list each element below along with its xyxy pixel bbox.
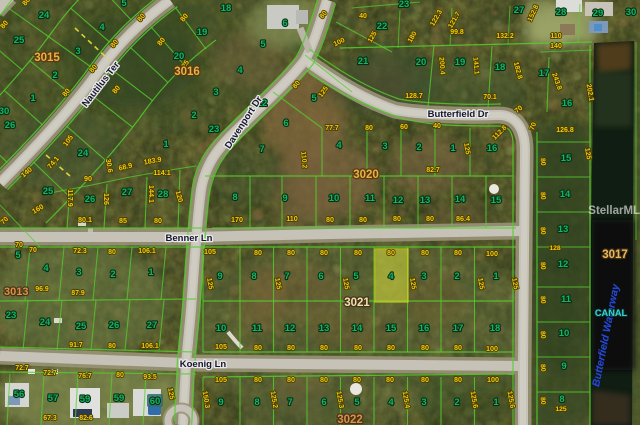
svg-text:80: 80 — [421, 343, 429, 352]
svg-text:25: 25 — [14, 35, 25, 46]
svg-text:3: 3 — [75, 46, 80, 57]
svg-text:117.9: 117.9 — [66, 189, 75, 207]
svg-text:15: 15 — [561, 153, 572, 164]
svg-text:57: 57 — [48, 393, 59, 404]
svg-text:5: 5 — [353, 271, 359, 282]
svg-text:80: 80 — [254, 375, 262, 384]
svg-text:8: 8 — [232, 192, 237, 203]
svg-text:14: 14 — [560, 189, 571, 200]
svg-text:80: 80 — [353, 375, 361, 384]
svg-text:12: 12 — [285, 323, 296, 334]
svg-text:17: 17 — [539, 68, 550, 79]
svg-text:30: 30 — [626, 7, 637, 18]
svg-text:128: 128 — [549, 245, 561, 252]
svg-text:1: 1 — [450, 143, 456, 154]
svg-text:7: 7 — [287, 397, 292, 408]
svg-text:6: 6 — [283, 118, 288, 129]
svg-text:9: 9 — [217, 271, 222, 282]
svg-text:72.7: 72.7 — [43, 370, 57, 377]
svg-text:19: 19 — [197, 27, 208, 38]
svg-text:80: 80 — [426, 214, 434, 223]
svg-text:80: 80 — [359, 215, 367, 224]
svg-text:80: 80 — [454, 248, 462, 257]
svg-text:5: 5 — [121, 0, 127, 9]
svg-text:80: 80 — [387, 248, 395, 257]
svg-text:9: 9 — [218, 397, 223, 408]
svg-text:4: 4 — [99, 22, 105, 33]
svg-text:1: 1 — [30, 93, 36, 104]
svg-text:110: 110 — [550, 33, 561, 40]
svg-text:1: 1 — [163, 139, 169, 150]
svg-text:80: 80 — [539, 192, 547, 200]
svg-text:99.8: 99.8 — [450, 29, 464, 36]
svg-text:80: 80 — [287, 343, 295, 352]
svg-text:5: 5 — [354, 397, 360, 408]
svg-text:23: 23 — [209, 124, 220, 135]
svg-text:4: 4 — [336, 140, 342, 151]
svg-text:3013: 3013 — [4, 286, 28, 298]
svg-text:3: 3 — [421, 271, 426, 282]
svg-text:27: 27 — [147, 320, 158, 331]
svg-text:80: 80 — [254, 343, 262, 352]
svg-text:14: 14 — [455, 194, 466, 205]
svg-text:25: 25 — [76, 321, 87, 332]
svg-text:67.3: 67.3 — [43, 415, 57, 422]
svg-text:13: 13 — [319, 323, 330, 334]
svg-text:3: 3 — [382, 141, 387, 152]
svg-text:26: 26 — [109, 320, 120, 331]
svg-text:70: 70 — [15, 242, 23, 249]
svg-text:106.1: 106.1 — [141, 343, 159, 350]
svg-text:80: 80 — [421, 248, 429, 257]
svg-text:77.7: 77.7 — [325, 125, 339, 132]
svg-text:27: 27 — [514, 5, 525, 16]
svg-text:1: 1 — [148, 267, 154, 278]
svg-text:93.5: 93.5 — [143, 374, 157, 381]
svg-text:80: 80 — [254, 248, 262, 257]
svg-text:80: 80 — [365, 125, 373, 132]
svg-text:5: 5 — [311, 93, 317, 104]
svg-text:5: 5 — [260, 39, 266, 50]
svg-text:14: 14 — [352, 323, 363, 334]
svg-text:128.7: 128.7 — [405, 93, 423, 100]
svg-text:16: 16 — [487, 143, 498, 154]
svg-text:4: 4 — [388, 397, 394, 408]
svg-text:3020: 3020 — [353, 169, 379, 181]
svg-text:80: 80 — [393, 214, 401, 223]
svg-text:40: 40 — [433, 123, 441, 130]
svg-text:12: 12 — [393, 195, 404, 206]
svg-text:28: 28 — [158, 189, 169, 200]
svg-text:96.9: 96.9 — [35, 286, 49, 293]
svg-text:86.4: 86.4 — [456, 214, 470, 223]
svg-text:110.2: 110.2 — [299, 151, 307, 169]
svg-text:6: 6 — [282, 18, 287, 29]
svg-text:70: 70 — [29, 247, 37, 254]
svg-text:80: 80 — [539, 262, 547, 270]
svg-text:Butterfield Dr: Butterfield Dr — [428, 109, 489, 120]
svg-text:23: 23 — [6, 310, 17, 321]
svg-text:70.1: 70.1 — [483, 94, 497, 101]
svg-text:11: 11 — [252, 323, 263, 334]
svg-text:80: 80 — [539, 331, 547, 339]
svg-text:80: 80 — [387, 343, 395, 352]
svg-text:80: 80 — [539, 158, 547, 166]
svg-text:80: 80 — [287, 375, 295, 384]
svg-text:18: 18 — [490, 323, 501, 334]
svg-text:82.7: 82.7 — [426, 167, 440, 174]
svg-text:15: 15 — [491, 195, 502, 206]
svg-text:2: 2 — [416, 142, 421, 153]
svg-text:15: 15 — [386, 323, 397, 334]
svg-text:4: 4 — [388, 271, 394, 282]
svg-text:126: 126 — [102, 193, 111, 205]
svg-text:3: 3 — [213, 87, 218, 98]
svg-text:80: 80 — [116, 372, 124, 379]
svg-text:2: 2 — [454, 271, 459, 282]
svg-text:11: 11 — [365, 193, 376, 204]
svg-text:1: 1 — [493, 397, 499, 408]
svg-text:16: 16 — [419, 323, 430, 334]
svg-text:80: 80 — [386, 375, 394, 384]
svg-text:80: 80 — [320, 248, 328, 257]
svg-text:3: 3 — [421, 397, 426, 408]
svg-text:3021: 3021 — [344, 297, 370, 309]
svg-text:85: 85 — [119, 216, 127, 225]
svg-text:19: 19 — [455, 57, 466, 68]
svg-text:8: 8 — [251, 271, 256, 282]
svg-text:100: 100 — [487, 375, 499, 384]
svg-text:80: 80 — [539, 227, 547, 235]
svg-text:26: 26 — [5, 120, 16, 131]
svg-text:59: 59 — [80, 394, 91, 405]
svg-text:10: 10 — [216, 323, 227, 334]
svg-text:26: 26 — [85, 194, 96, 205]
svg-text:22: 22 — [377, 21, 388, 32]
svg-text:90: 90 — [84, 174, 92, 183]
svg-text:7: 7 — [259, 144, 264, 155]
svg-text:80: 80 — [539, 364, 547, 372]
svg-text:2: 2 — [454, 397, 459, 408]
svg-text:17: 17 — [453, 323, 464, 334]
svg-text:80: 80 — [108, 343, 116, 350]
svg-text:72.3: 72.3 — [73, 248, 87, 255]
svg-text:144.1: 144.1 — [147, 185, 156, 203]
svg-text:10: 10 — [559, 328, 570, 339]
svg-text:2: 2 — [52, 70, 57, 81]
svg-text:4: 4 — [237, 65, 243, 76]
svg-text:80: 80 — [154, 216, 162, 225]
svg-text:170: 170 — [231, 215, 243, 224]
svg-text:7: 7 — [284, 271, 289, 282]
svg-text:3: 3 — [76, 267, 81, 278]
svg-text:CANAL: CANAL — [595, 308, 628, 318]
svg-text:9: 9 — [282, 193, 287, 204]
svg-text:80: 80 — [539, 397, 547, 405]
svg-text:80: 80 — [108, 249, 116, 256]
svg-text:91.7: 91.7 — [69, 342, 83, 349]
svg-text:2: 2 — [110, 269, 115, 280]
svg-text:23: 23 — [399, 0, 410, 10]
svg-text:56: 56 — [14, 389, 25, 400]
svg-text:80: 80 — [320, 343, 328, 352]
svg-text:18: 18 — [221, 3, 232, 14]
svg-text:110: 110 — [286, 214, 298, 223]
svg-text:27: 27 — [122, 187, 133, 198]
svg-text:105: 105 — [204, 247, 216, 256]
svg-text:12: 12 — [558, 259, 569, 270]
svg-text:8: 8 — [254, 397, 259, 408]
svg-text:60: 60 — [150, 396, 161, 407]
svg-text:100: 100 — [486, 344, 498, 353]
svg-text:114.1: 114.1 — [153, 168, 171, 177]
svg-text:40: 40 — [359, 13, 367, 20]
svg-text:24: 24 — [40, 317, 51, 328]
svg-text:5: 5 — [15, 250, 21, 261]
svg-text:140: 140 — [550, 43, 562, 50]
svg-text:105: 105 — [215, 375, 227, 384]
svg-text:30: 30 — [0, 106, 9, 117]
svg-text:24: 24 — [39, 10, 50, 21]
svg-text:Benner Ln: Benner Ln — [166, 233, 213, 244]
svg-text:21: 21 — [358, 56, 369, 67]
svg-text:80: 80 — [320, 375, 328, 384]
svg-text:106.1: 106.1 — [138, 248, 156, 255]
svg-text:3015: 3015 — [34, 52, 60, 64]
svg-text:6: 6 — [318, 271, 323, 282]
svg-text:60: 60 — [400, 124, 408, 131]
svg-text:76.7: 76.7 — [78, 373, 92, 380]
svg-text:20: 20 — [174, 51, 185, 62]
svg-text:24: 24 — [78, 148, 89, 159]
svg-text:StellarMLS: StellarMLS — [588, 205, 640, 217]
svg-text:80: 80 — [539, 296, 547, 304]
svg-text:Koenig Ln: Koenig Ln — [180, 359, 227, 370]
svg-text:80: 80 — [354, 343, 362, 352]
svg-text:3022: 3022 — [337, 414, 363, 425]
svg-text:4: 4 — [43, 263, 49, 274]
svg-text:3017: 3017 — [602, 249, 628, 261]
svg-text:105: 105 — [215, 342, 227, 351]
svg-text:126.8: 126.8 — [556, 127, 574, 134]
svg-text:18: 18 — [495, 62, 506, 73]
svg-text:82.6: 82.6 — [79, 415, 93, 422]
svg-text:29: 29 — [593, 8, 604, 19]
svg-text:8: 8 — [559, 394, 564, 405]
svg-text:11: 11 — [561, 294, 572, 305]
svg-text:6: 6 — [321, 397, 326, 408]
svg-text:80: 80 — [421, 375, 429, 384]
svg-text:28: 28 — [556, 7, 567, 18]
svg-text:100: 100 — [486, 249, 498, 258]
svg-text:80: 80 — [326, 215, 334, 224]
svg-text:80: 80 — [287, 248, 295, 257]
svg-text:80: 80 — [454, 375, 462, 384]
svg-text:1: 1 — [493, 271, 499, 282]
svg-text:80: 80 — [454, 343, 462, 352]
svg-text:10: 10 — [329, 193, 340, 204]
svg-text:20: 20 — [416, 57, 427, 68]
svg-text:9: 9 — [561, 361, 566, 372]
svg-text:80.1: 80.1 — [78, 215, 92, 224]
svg-text:80: 80 — [354, 248, 362, 257]
svg-text:2: 2 — [191, 110, 196, 121]
svg-text:125: 125 — [555, 406, 567, 413]
svg-text:16: 16 — [562, 98, 573, 109]
svg-text:13: 13 — [558, 224, 569, 235]
svg-text:59: 59 — [114, 393, 125, 404]
svg-text:132.2: 132.2 — [496, 33, 514, 40]
svg-text:3016: 3016 — [174, 66, 200, 78]
svg-text:87.9: 87.9 — [71, 290, 85, 297]
svg-text:25: 25 — [43, 186, 54, 197]
svg-text:72.7: 72.7 — [15, 365, 29, 372]
svg-text:13: 13 — [420, 195, 431, 206]
